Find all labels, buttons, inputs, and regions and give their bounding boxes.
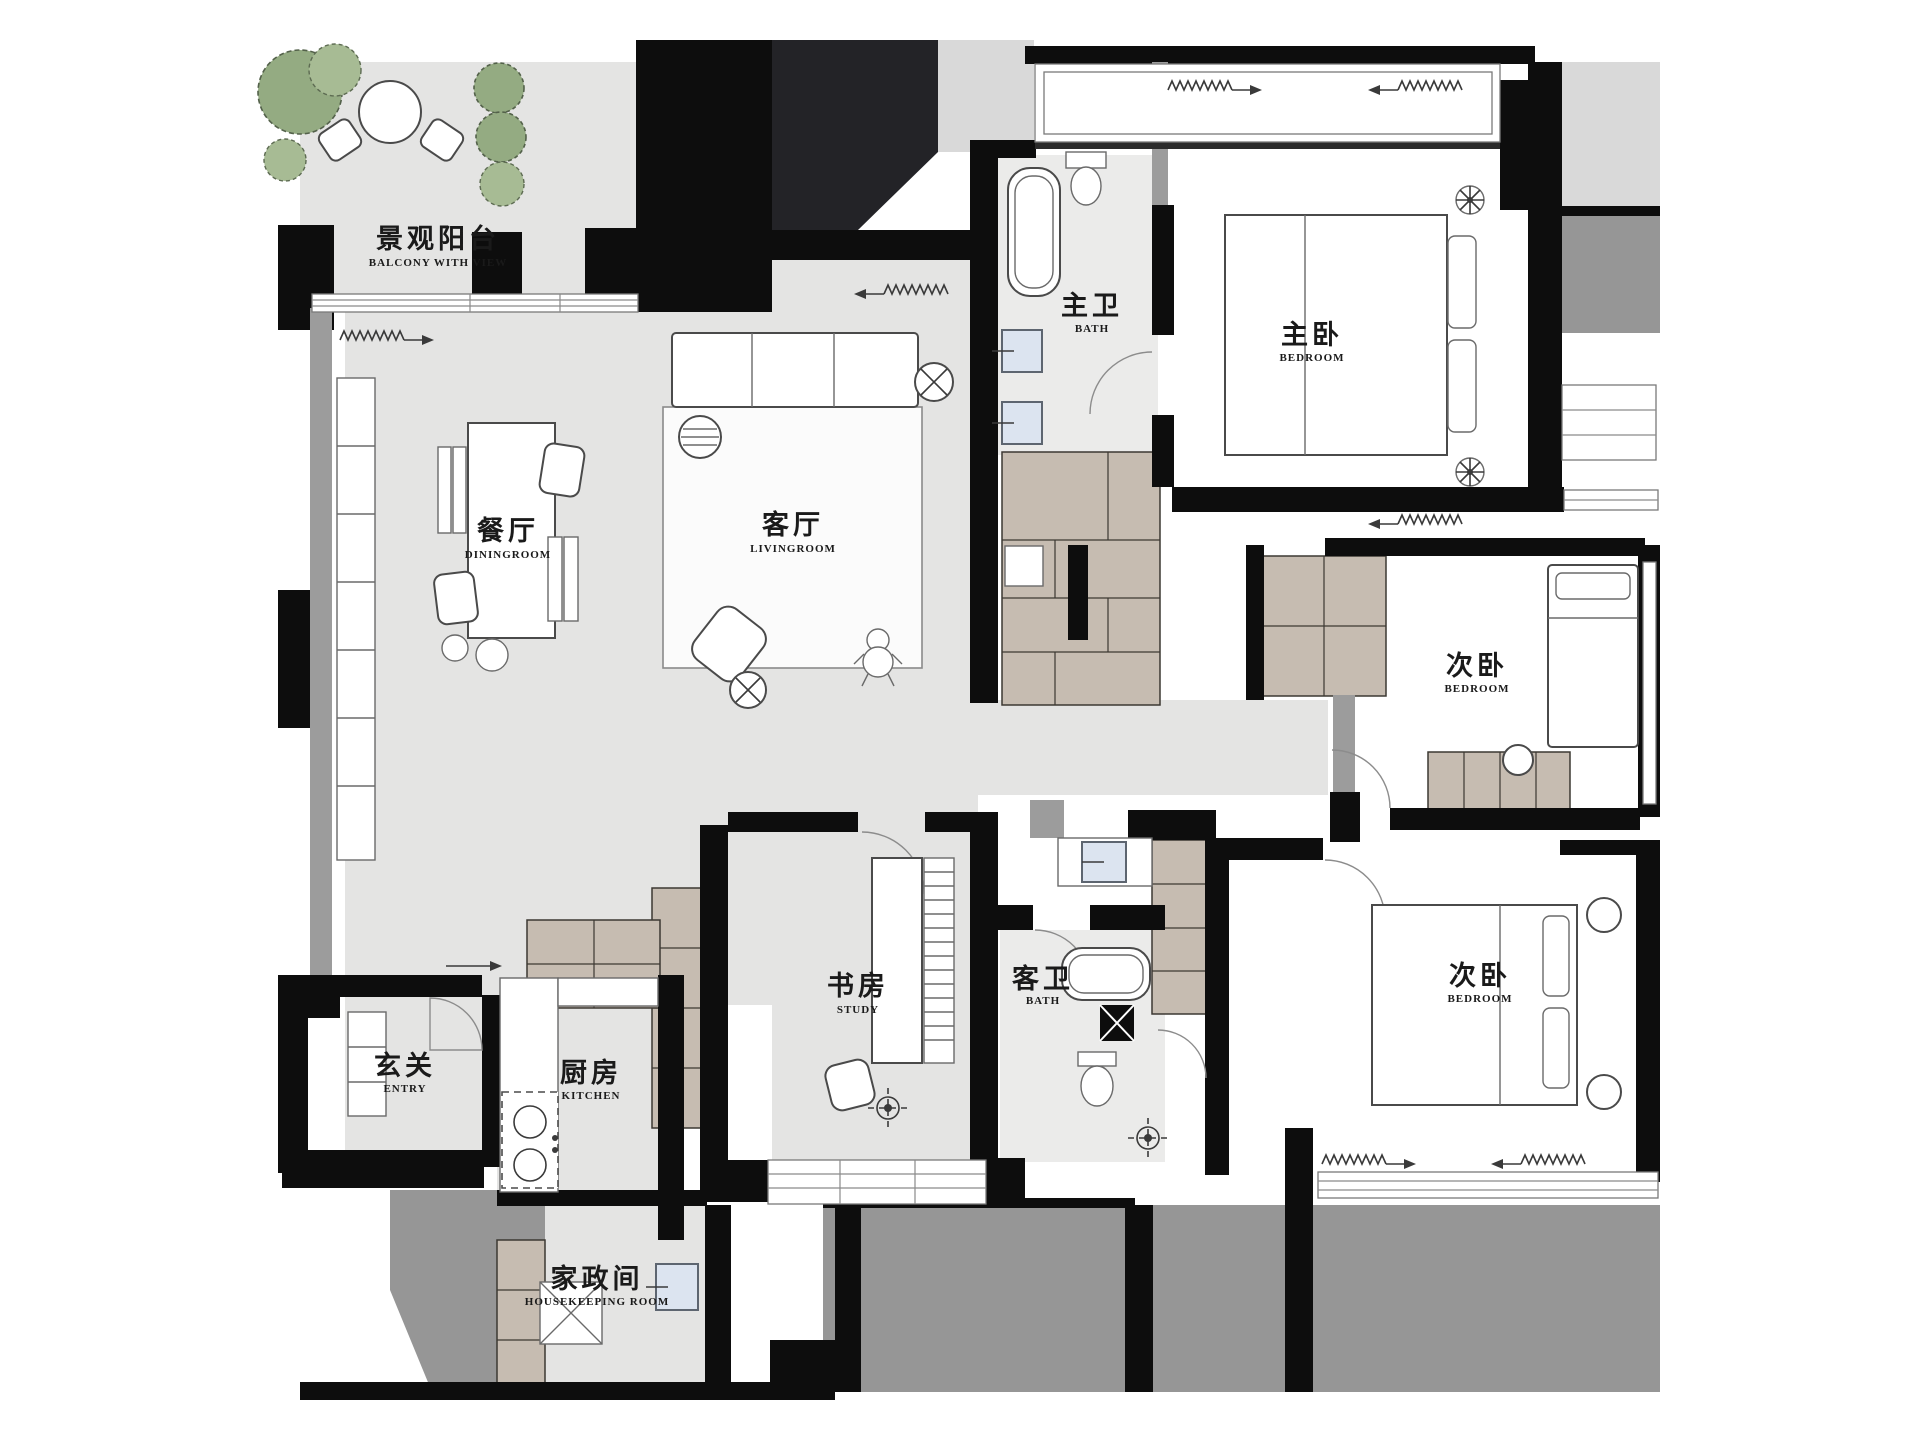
room-label-kitchen: 厨房 KITCHEN [560,1058,622,1102]
bathtub-inner [1069,955,1143,993]
bedroom2-window-icon [1643,562,1656,804]
room-label-zh: 客卫 [1012,963,1074,995]
shaft-box-icon [1100,1005,1134,1041]
room-label-zh: 次卧 [1446,651,1508,682]
bedroom2-furniture [1503,565,1638,775]
dining-chair-icon [433,571,479,626]
nightstand-lamp-icon [1456,186,1484,214]
room-label-en: BEDROOM [1444,683,1509,695]
sofa-icon [672,333,918,407]
master-bedroom-furniture [1225,186,1484,486]
room-label-balcony: 景观阳台 BALCONY WITH VIEW [369,223,507,269]
master-suite-window-icon [1035,64,1500,142]
room-label-en: DININGROOM [465,549,551,561]
nightstand-icon [1503,745,1533,775]
balcony-window-icon [312,294,638,312]
room-label-zh: 玄关 [374,1050,436,1082]
floor-plan-page: 景观阳台 BALCONY WITH VIEW 餐厅 DININGROOM 客厅 … [0,0,1920,1440]
kitchen-counter-icon [558,978,658,1006]
room-label-bedroom2: 次卧 BEDROOM [1444,651,1509,695]
desk-icon [872,858,922,1063]
bathtub-inner [1015,176,1053,288]
bedroom2-wardrobe-icon [1428,752,1570,812]
corridor-floor [978,700,1328,795]
room-label-bedroom3: 次卧 BEDROOM [1447,961,1512,1005]
bookshelf-icon [924,858,954,1063]
room-label-en: HOUSEKEEPING ROOM [525,1296,669,1308]
floor-plan-canvas: 景观阳台 BALCONY WITH VIEW 餐厅 DININGROOM 客厅 … [0,0,1920,1440]
room-label-en: BATH [1075,323,1109,335]
room-label-zh: 主卧 [1281,320,1343,351]
sideboard-icon [337,378,375,860]
room-label-en: BALCONY WITH VIEW [369,257,507,269]
patio-table-icon [359,81,421,143]
pillow-icon [1556,573,1630,599]
shower-door-arc [1158,1030,1206,1078]
breakline-arrow-icon [1368,515,1462,529]
stool-icon [442,635,468,661]
dining-bench-icon [453,447,466,533]
room-label-zh: 厨房 [560,1058,622,1089]
tree-icon [474,63,524,113]
room-label-zh: 景观阳台 [376,223,500,255]
tree-icon [476,112,526,162]
dining-bench-icon [438,447,451,533]
tree-icon [264,139,306,181]
nightstand-icon [1587,898,1621,932]
pillow-icon [1543,1008,1569,1088]
room-label-zh: 餐厅 [477,516,539,547]
room-label-living: 客厅 LIVINGROOM [750,509,836,555]
ceiling-fan-icon [915,363,953,401]
housekeeping-cabinet-icon [497,1240,545,1390]
room-label-zh: 主卫 [1061,291,1123,322]
living-floor-top [772,258,978,318]
master-bottom-window-icon [1564,490,1658,510]
room-label-en: BATH [1026,995,1060,1007]
pillow-icon [1448,236,1476,328]
room-label-en: LIVINGROOM [750,543,836,555]
breakline-arrow-icon [1491,1155,1585,1169]
dining-bench-icon [564,537,578,621]
closet-cabinet-icon [1262,556,1386,696]
stool-icon [476,639,508,671]
room-label-dining: 餐厅 DININGROOM [465,516,551,561]
room-label-zh: 家政间 [551,1263,644,1295]
room-label-en: BEDROOM [1279,352,1344,364]
room-label-en: ENTRY [383,1083,426,1095]
room-label-master-bedroom: 主卧 BEDROOM [1279,320,1344,364]
bedroom3-window-icon [1318,1172,1658,1198]
breakline-arrow-icon [1322,1155,1416,1169]
room-label-en: STUDY [837,1004,879,1016]
room-label-en: KITCHEN [562,1090,621,1102]
study-window-icon [768,1160,986,1204]
tree-icon [480,162,524,206]
pillow-icon [1448,340,1476,432]
nightstand-lamp-icon [1456,458,1484,486]
toilet-icon [1078,1052,1116,1106]
master-side-window-icon [1562,385,1656,460]
room-label-zh: 书房 [827,971,889,1002]
room-label-en: BEDROOM [1447,993,1512,1005]
dining-chair-icon [538,442,585,498]
tree-icon [309,44,361,96]
pillow-icon [1543,916,1569,996]
nightstand-icon [1587,1075,1621,1109]
room-label-zh: 客厅 [762,509,824,541]
room-label-zh: 次卧 [1449,961,1511,992]
